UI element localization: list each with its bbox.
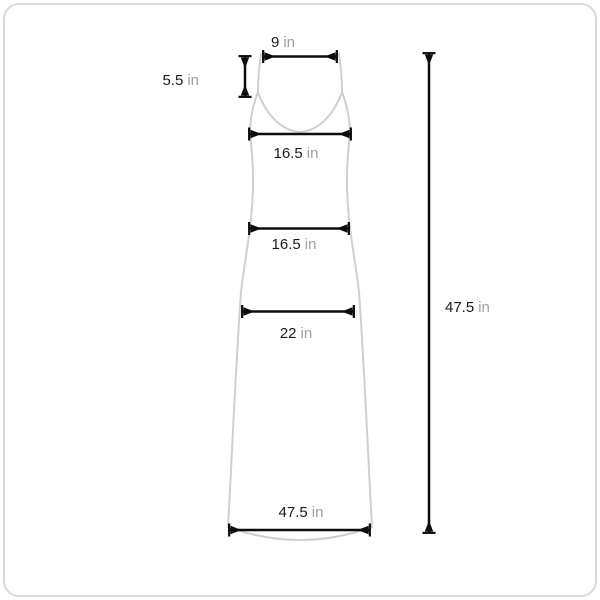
right-armhole <box>342 92 350 134</box>
measurement-unit: in <box>307 145 319 162</box>
measurement-unit: in <box>312 504 324 521</box>
page-background: 9in 5.5in 16.5in 16.5in 22in 47.5in 47.5… <box>0 0 600 600</box>
hip-width-label: 22in <box>280 325 312 342</box>
measurement-unit: in <box>301 325 313 342</box>
dress-outline <box>228 54 372 540</box>
left-armhole <box>250 92 258 134</box>
right-strap-line <box>339 54 342 92</box>
measurement-value: 5.5 <box>162 72 183 89</box>
measurement-value: 9 <box>271 34 279 51</box>
dress-measurement-diagram: 9in 5.5in 16.5in 16.5in 22in 47.5in 47.5… <box>0 0 600 600</box>
measurement-value: 22 <box>280 325 297 342</box>
measurement-value: 47.5 <box>445 299 474 316</box>
strap-width-label: 9in <box>271 34 295 51</box>
measurement-value: 16.5 <box>274 145 303 162</box>
right-side-seam <box>347 134 372 527</box>
measurement-unit: in <box>187 72 199 89</box>
measurement-labels: 9in 5.5in 16.5in 16.5in 22in 47.5in 47.5… <box>162 34 489 521</box>
hem-width-label: 47.5in <box>279 504 324 521</box>
waist-width-label: 16.5in <box>272 236 317 253</box>
left-strap-line <box>258 54 261 92</box>
measurement-value: 47.5 <box>279 504 308 521</box>
v-neckline <box>258 92 342 132</box>
bust-width-label: 16.5in <box>274 145 319 162</box>
measurement-unit: in <box>305 236 317 253</box>
dimension-arrows <box>229 53 429 533</box>
measurement-unit: in <box>283 34 295 51</box>
measurement-unit: in <box>478 299 490 316</box>
total-length-label: 47.5in <box>445 299 490 316</box>
measurement-value: 16.5 <box>272 236 301 253</box>
left-side-seam <box>228 134 253 527</box>
strap-length-label: 5.5in <box>162 72 199 89</box>
